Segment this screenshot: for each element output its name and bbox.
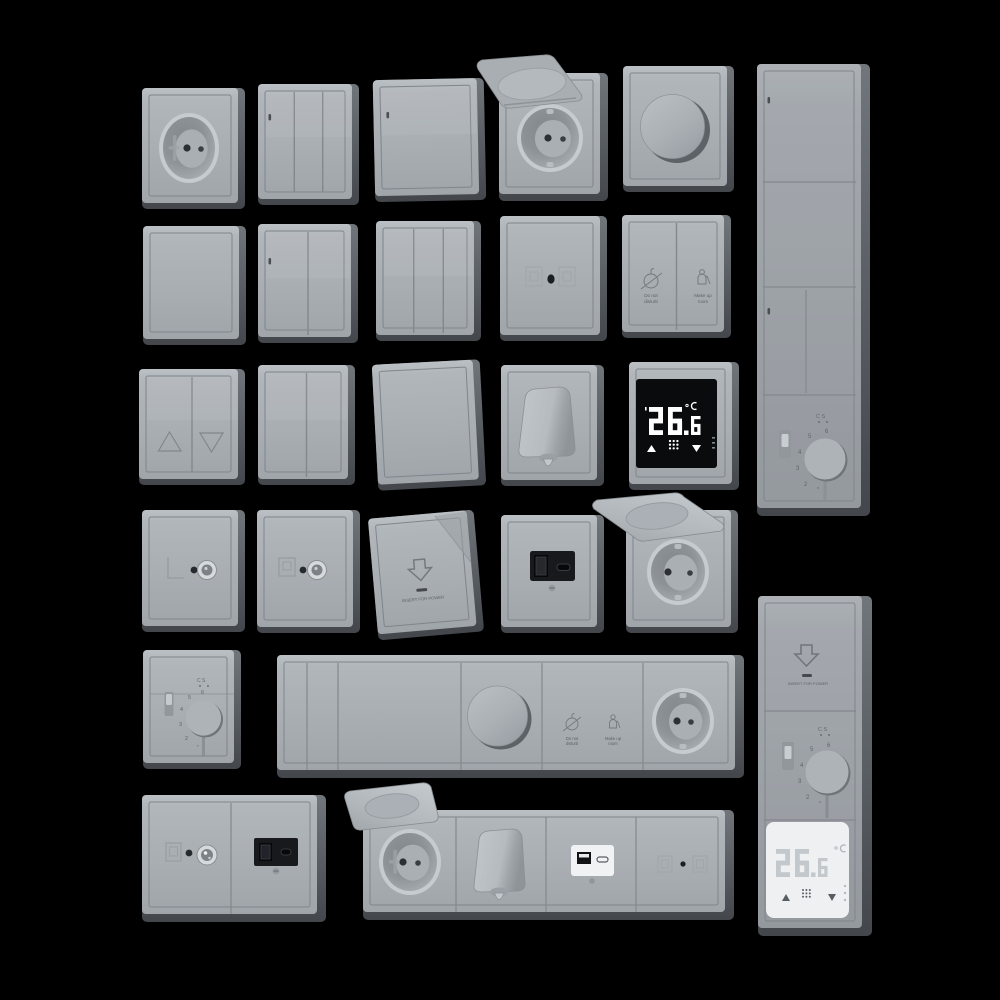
svg-text:6: 6 <box>201 690 204 696</box>
svg-text:C S: C S <box>818 727 828 733</box>
svg-text:5: 5 <box>188 695 191 701</box>
svg-text:room: room <box>608 741 618 746</box>
svg-text:disturb: disturb <box>566 741 579 746</box>
svg-text:4: 4 <box>180 707 183 713</box>
svg-text:3: 3 <box>179 722 182 728</box>
svg-text:Make up: Make up <box>694 293 712 298</box>
svg-text:*: * <box>819 801 821 807</box>
svg-text:INSERT FOR POWER: INSERT FOR POWER <box>788 681 828 686</box>
svg-text:2: 2 <box>185 736 188 742</box>
svg-text:*: * <box>817 487 819 493</box>
svg-text:*: * <box>197 744 199 749</box>
svg-text:C S: C S <box>197 678 206 684</box>
svg-text:room: room <box>698 299 709 304</box>
svg-text:C S: C S <box>816 414 826 420</box>
svg-text:disturb: disturb <box>644 299 658 304</box>
svg-text:Do not: Do not <box>644 293 658 298</box>
